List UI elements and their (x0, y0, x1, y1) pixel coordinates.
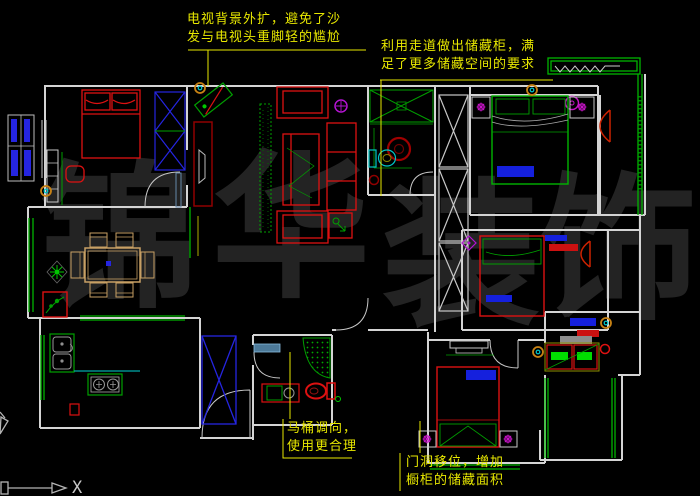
column-marker-icon (533, 347, 543, 357)
tv-cabinet (194, 122, 212, 206)
cad-viewport[interactable]: 锦 华 装 饰 (0, 0, 700, 496)
bed-runner (497, 166, 534, 177)
area-table (8, 115, 34, 181)
dresser-drawers (47, 163, 58, 189)
shower-bottom (303, 338, 330, 378)
floor-drain-box (70, 404, 79, 415)
washbasin-bottom (262, 384, 299, 402)
entry-shoe-cabinet (195, 83, 233, 117)
bed-midright (462, 236, 544, 316)
balcony-door-red (600, 110, 610, 142)
bedroom-door-red (581, 241, 590, 267)
kitchen-label-red (577, 330, 599, 337)
annotation-line: 利用走道做出储藏柜，满 (381, 37, 535, 55)
stove (88, 374, 122, 395)
washbasin-top (388, 138, 410, 160)
key-icon (333, 218, 345, 231)
column-marker-icon (601, 318, 611, 328)
annotation-line: 使用更合理 (287, 437, 357, 455)
kitchen-label-blue (570, 318, 596, 326)
tv (199, 150, 205, 183)
kitchen-sink (50, 334, 74, 372)
gas-valve-icon (601, 345, 610, 354)
lamp-icon (423, 435, 432, 444)
ucs-icon (0, 412, 66, 494)
annotation-line: 门洞移位，增加 (406, 453, 504, 471)
floor-drain (370, 176, 379, 185)
bathroom-door-leaf (254, 344, 280, 352)
planter-box (43, 292, 67, 317)
annotation-line: 电视背景外扩，避免了沙 (187, 10, 341, 28)
annotation-toilet-note: 马桶调向， 使用更合理 (287, 419, 357, 455)
annotation-line: 发与电视头重脚轻的尴尬 (187, 28, 341, 46)
dim-label-red (549, 244, 578, 251)
lamp-icon (578, 103, 587, 112)
windows (29, 58, 642, 469)
decor-strip (260, 104, 271, 232)
annotation-line: 橱柜的储藏面积 (406, 471, 504, 489)
ottoman (66, 166, 84, 182)
annotation-tv-note: 电视背景外扩，避免了沙 发与电视头重脚轻的尴尬 (187, 10, 341, 46)
bed-runner (466, 370, 496, 380)
column-marker-icon (195, 83, 205, 93)
lamp-icon (477, 103, 486, 112)
toilet-bottom (306, 383, 341, 402)
kitchen-cabinets (545, 343, 599, 371)
ceiling-fan-icon (335, 100, 347, 112)
plant-icon (47, 261, 67, 283)
bed-bottom (419, 341, 517, 447)
bed-label-blue (486, 295, 512, 302)
dim-label-blue (545, 235, 567, 241)
bed-topleft (82, 90, 140, 158)
dining-table (71, 233, 154, 297)
shower-top (370, 90, 433, 168)
hall-cabinet (202, 336, 236, 424)
annotation-door-note: 门洞移位，增加 橱柜的储藏面积 (406, 453, 504, 489)
annotation-line: 马桶调向， (287, 419, 357, 437)
annotation-storage-note: 利用走道做出储藏柜，满 足了更多储藏空间的要求 (381, 37, 535, 73)
table-centerpiece (106, 261, 111, 266)
ucs-x-label: X (72, 478, 83, 496)
door-leaf (176, 173, 181, 207)
annotation-line: 足了更多储藏空间的要求 (381, 55, 535, 73)
lamp-icon (504, 435, 513, 444)
corridor-storage-cabinets (439, 95, 468, 311)
